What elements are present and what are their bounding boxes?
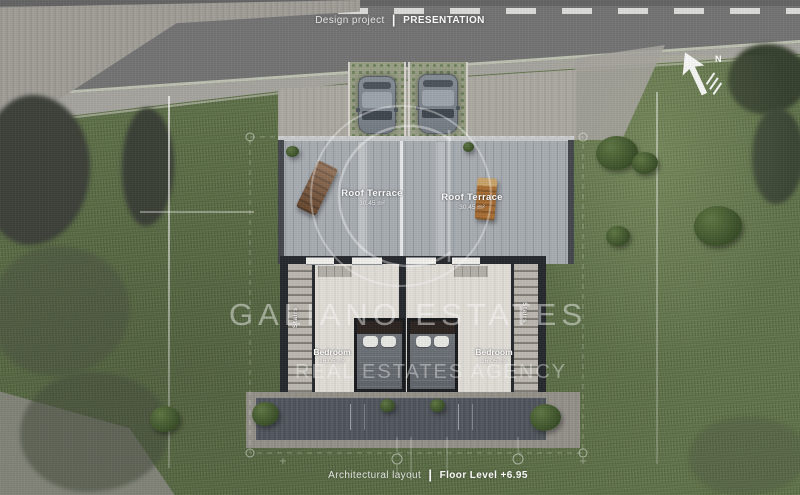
site-plan-rendering: Roof Terrace 30.45 m² Roof Terrace 30.45… [0,0,800,495]
north-label: N [715,54,722,64]
header-separator: | [392,12,396,27]
north-arrow-icon: N [668,46,728,106]
watermark-line1: GALIANO ESTATES [228,297,588,333]
footer-layout-label: Architectural layout [328,470,421,481]
footer-caption: Architectural layout | Floor Level +6.95 [28,467,800,482]
header-project-label: Design project [315,15,385,26]
footer-separator: | [428,467,432,482]
header-stage-label: PRESENTATION [403,15,485,26]
watermark-line2: REAL ESTATES AGENCY [295,361,530,384]
footer-level-label: Floor Level +6.95 [440,470,528,481]
header-caption: Design project | PRESENTATION [0,12,800,27]
